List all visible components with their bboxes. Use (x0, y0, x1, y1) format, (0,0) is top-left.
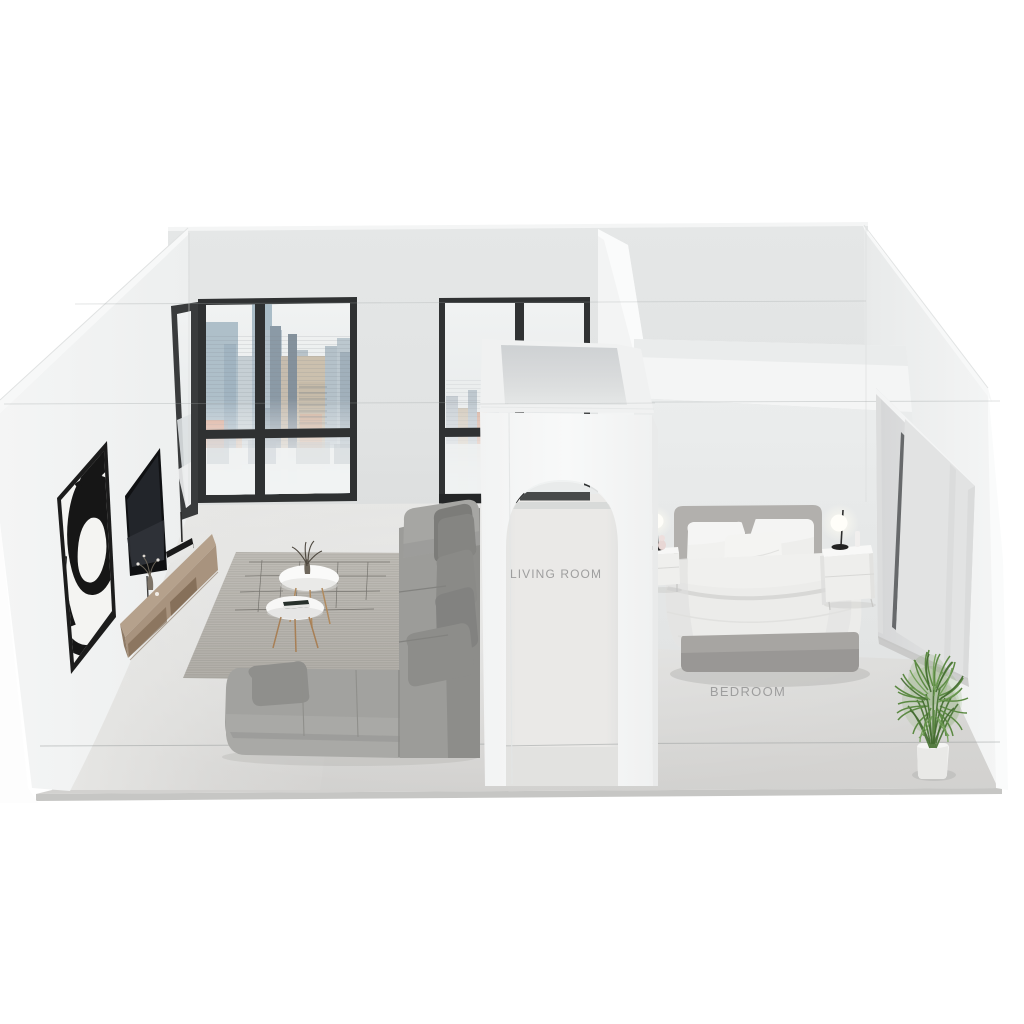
svg-text:LIVING ROOM: LIVING ROOM (510, 567, 602, 581)
svg-text:BEDROOM: BEDROOM (710, 684, 786, 699)
